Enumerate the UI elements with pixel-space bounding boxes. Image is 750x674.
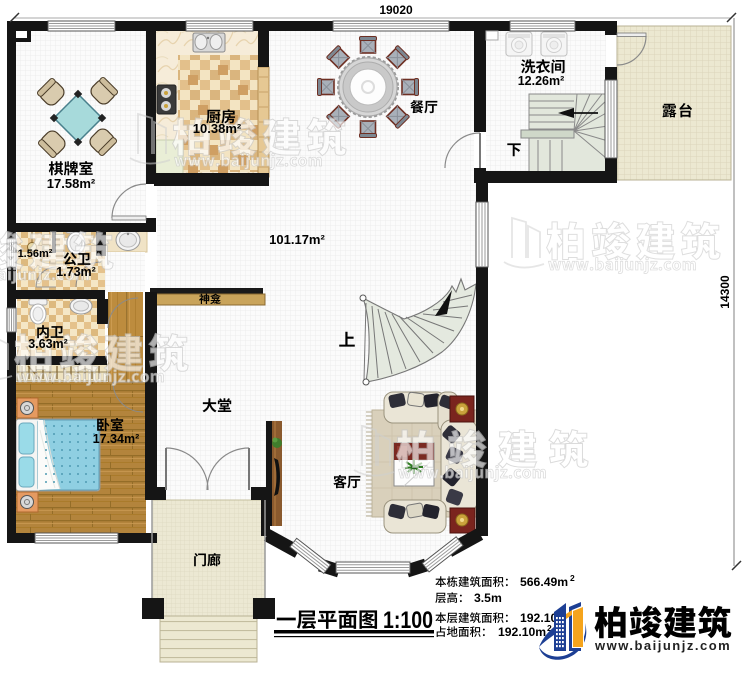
svg-text:19020: 19020 [379,3,413,17]
svg-text:3.63m²: 3.63m² [28,337,68,351]
svg-text:1.73m²: 1.73m² [56,265,96,279]
svg-text:www.baijunjz.com: www.baijunjz.com [594,638,731,653]
svg-text:10.38m²: 10.38m² [193,121,242,136]
svg-text:17.34m²: 17.34m² [93,432,140,446]
svg-text:1.56m²: 1.56m² [18,248,53,260]
svg-text:2: 2 [570,573,575,583]
svg-text:566.49m: 566.49m [520,575,568,589]
svg-text:3.5m: 3.5m [474,591,502,605]
svg-text:192.10m: 192.10m [498,625,546,639]
svg-text:12.26m²: 12.26m² [518,74,565,88]
svg-text:14300: 14300 [718,275,732,309]
svg-text:17.58m²: 17.58m² [47,176,96,191]
svg-text:101.17m²: 101.17m² [269,232,325,247]
svg-text:1:100: 1:100 [383,607,433,634]
